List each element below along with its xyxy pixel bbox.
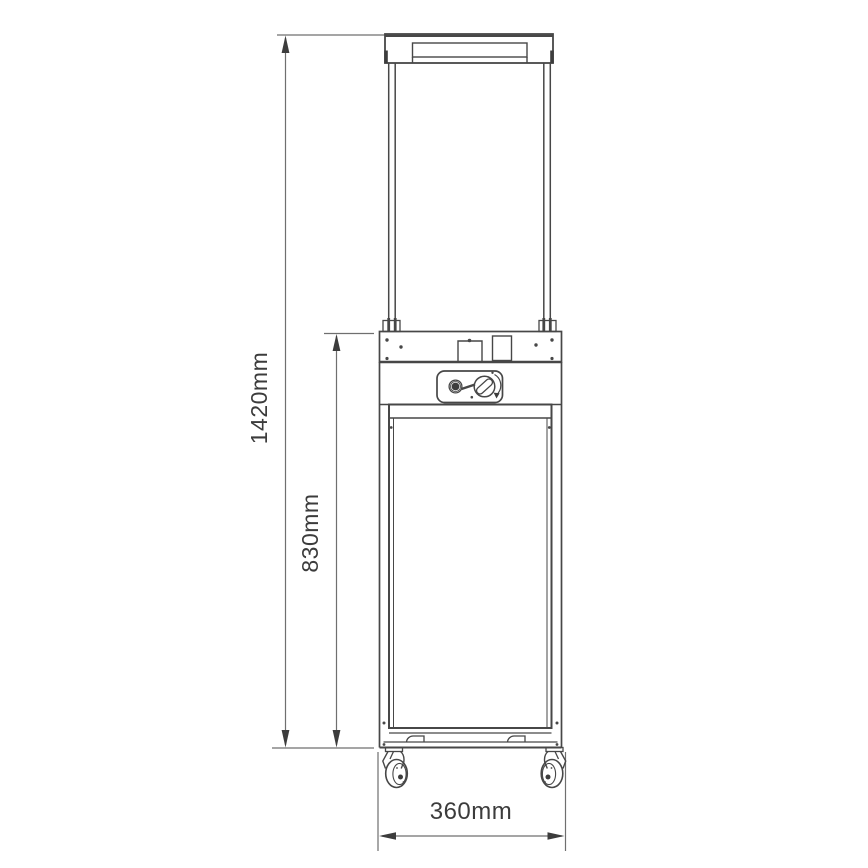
knob-stop-dot-high [491,372,493,374]
heater-top-cap [384,34,554,64]
arc-arrowhead [494,393,500,399]
cabinet-door [389,405,552,729]
dimension-label-body-height: 830mm [297,493,323,572]
arrowhead-down [282,730,290,748]
screw-dot [399,345,402,348]
knob-stop-dot-low [471,396,474,399]
wheel-detail-dot [544,781,546,783]
frame-screw-dot [556,722,559,725]
wheel-detail-dot [551,767,553,769]
control-knob-handle [475,378,494,396]
burner-cutout [458,341,482,361]
caster-fork-inner [390,752,394,760]
screw-dot [550,338,553,341]
rail-anchor-right [550,51,554,64]
arrowhead-up [333,334,341,351]
dimension-label-overall-height: 1420mm [246,352,272,444]
screw-dot [385,357,388,360]
screw-dot [550,357,553,360]
patio-heater-outline [380,34,566,788]
cabinet-body [380,362,562,748]
arrowhead-down [333,730,341,748]
cap-handle-band [413,43,528,57]
dimension-label-width: 360mm [430,798,513,825]
rail-anchor-left [384,51,388,64]
rail-foot-plate-right [539,321,556,332]
control-band [380,371,562,405]
wheel-hub [398,775,403,780]
wheel-hub [546,775,551,780]
screw-dot [534,343,537,346]
cutout-pin [468,339,472,343]
hinge-dot-right [548,426,551,429]
wheel-detail-dot [396,767,398,769]
frame-screw-dot [556,743,559,746]
caster-mount-plate [386,748,403,752]
hinge-dot-left [390,426,393,429]
caster-fork-inner [555,752,559,760]
control-panel [437,371,503,403]
arrowhead-right [548,832,565,840]
wheel-detail-dot [403,781,405,783]
frame-screw-dot [383,722,386,725]
base-clip-right [508,736,526,742]
housing-strip [380,332,562,363]
dimension-overall-height: 1420mm [246,35,386,748]
vent-slot [493,336,512,361]
dimension-body-height: 830mm [297,334,374,748]
knob-rotation-arc [495,375,501,395]
caster-mount-plate [546,748,563,752]
cap-outer [385,34,553,63]
screw-dot [385,338,388,341]
rail-foot-plate-left [383,321,400,332]
glass-frame-rails [383,63,556,332]
diagram-canvas: 1420mm 830mm 360mm [0,0,868,868]
arrowhead-up [282,36,290,54]
caster-left [383,748,408,788]
igniter-button-center [452,383,460,391]
burner-housing [380,332,562,363]
frame-screw-dot [383,743,386,746]
arrowhead-left [379,832,396,840]
caster-right [541,748,566,788]
base-clip-left [407,736,425,742]
igniter-link-rod [462,385,476,390]
patio-heater-dimension-drawing: 1420mm 830mm 360mm [0,0,868,868]
